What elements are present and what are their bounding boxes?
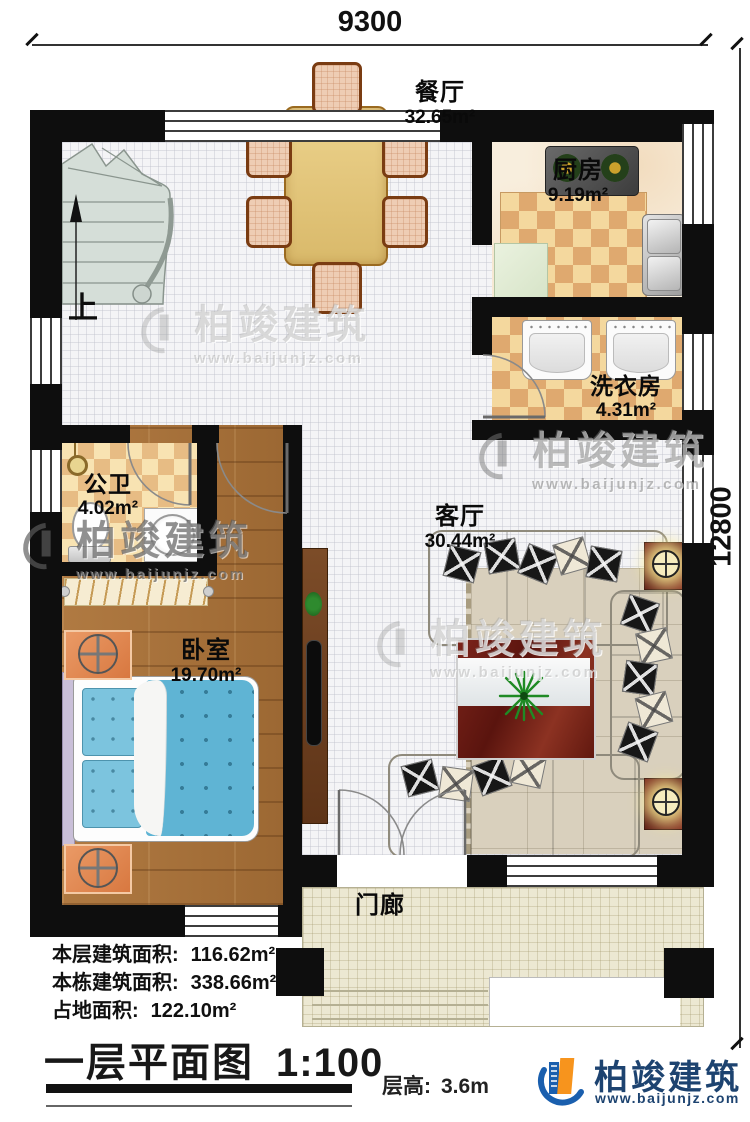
dining-chair [382,196,428,248]
sofa-pillow [585,545,622,582]
dining-chair [312,262,362,314]
end-table-lamp [652,550,680,578]
window [507,855,657,887]
room-label-kitchen: 厨房9.19m² [526,158,630,206]
entry-double-door [336,790,468,888]
room-label-living: 客厅30.44m² [404,504,516,552]
floor-height: 层高:3.6m [382,1070,489,1100]
closet [64,578,208,606]
wall [657,855,714,887]
wall [682,224,714,334]
wall [682,543,714,887]
wall [472,297,714,317]
porch-step-line [312,1018,488,1020]
dining-chair [246,196,292,248]
room-label-laundry: 洗衣房4.31m² [570,374,682,421]
dim-tick [730,1037,743,1050]
porch-pillar [276,948,324,996]
brand-url: www.baijunjz.com [595,1090,740,1106]
right-dimension-label: 12800 [706,467,739,587]
wall [30,512,62,937]
room-label-bedroom: 卧室19.70m² [150,638,262,686]
stat-floor-area: 本层建筑面积:116.62m² [52,938,275,967]
bedroom-door [215,440,291,518]
floor-plan-page: 9300 12800 上 [0,0,750,1122]
machine-drum [613,333,669,373]
wall [278,905,302,937]
porch-step-line [312,990,488,992]
dim-tick [730,37,743,50]
stat-building-area: 本栋建筑面积:338.66m² [52,966,276,995]
brand-logo-icon [534,1050,588,1108]
washbasin [150,514,195,556]
room-label-porch: 门廊 [344,893,416,920]
wall [30,384,62,450]
console-plant [305,592,322,616]
sink-basin [647,256,681,291]
stat-footprint-area: 占地面积:122.10m² [52,994,236,1023]
top-dimension-label: 9300 [300,6,440,39]
bed-sheet-fold [134,680,167,836]
bed-pillow [82,688,142,756]
tv-screen [306,640,322,746]
stairs-up-label: 上 [62,283,104,327]
wall [290,855,337,887]
right-dimension-line [739,48,741,1048]
plan-title: 一层平面图1:100 [44,1030,383,1088]
room-label-dining: 餐厅32.65m² [378,80,502,128]
nightstand-lamp [78,634,118,674]
bed-pillow [82,760,142,828]
porch-notch [489,977,680,1026]
washing-machine [606,320,676,380]
sink-basin [647,219,681,254]
window [185,905,278,937]
title-underline-thick [46,1084,352,1093]
laundry-door [478,350,553,425]
sofa-pillow [622,660,658,696]
wall [467,855,507,887]
nightstand-lamp [78,848,118,888]
kitchen-counter [494,243,548,299]
toilet-tank [68,546,111,563]
title-underline-thin [46,1105,352,1107]
window [682,124,714,224]
window [682,334,714,410]
porch-step-line [312,1004,488,1006]
wall [62,425,130,443]
wall [682,110,714,124]
machine-controls [527,324,587,330]
wall [472,297,492,355]
wall [472,110,492,245]
table-plant [496,668,552,724]
wall [197,443,217,562]
sofa-pillow [635,627,673,665]
end-table-lamp [652,788,680,816]
machine-controls [611,324,671,330]
closet-rod-end [203,586,214,597]
wall [30,110,62,318]
wall [30,905,185,937]
dining-chair [312,62,362,114]
top-dimension-line [32,44,708,46]
room-label-bathroom: 公卫4.02m² [56,472,160,519]
window [30,318,62,384]
wall [62,562,217,576]
porch-pillar [664,948,714,998]
